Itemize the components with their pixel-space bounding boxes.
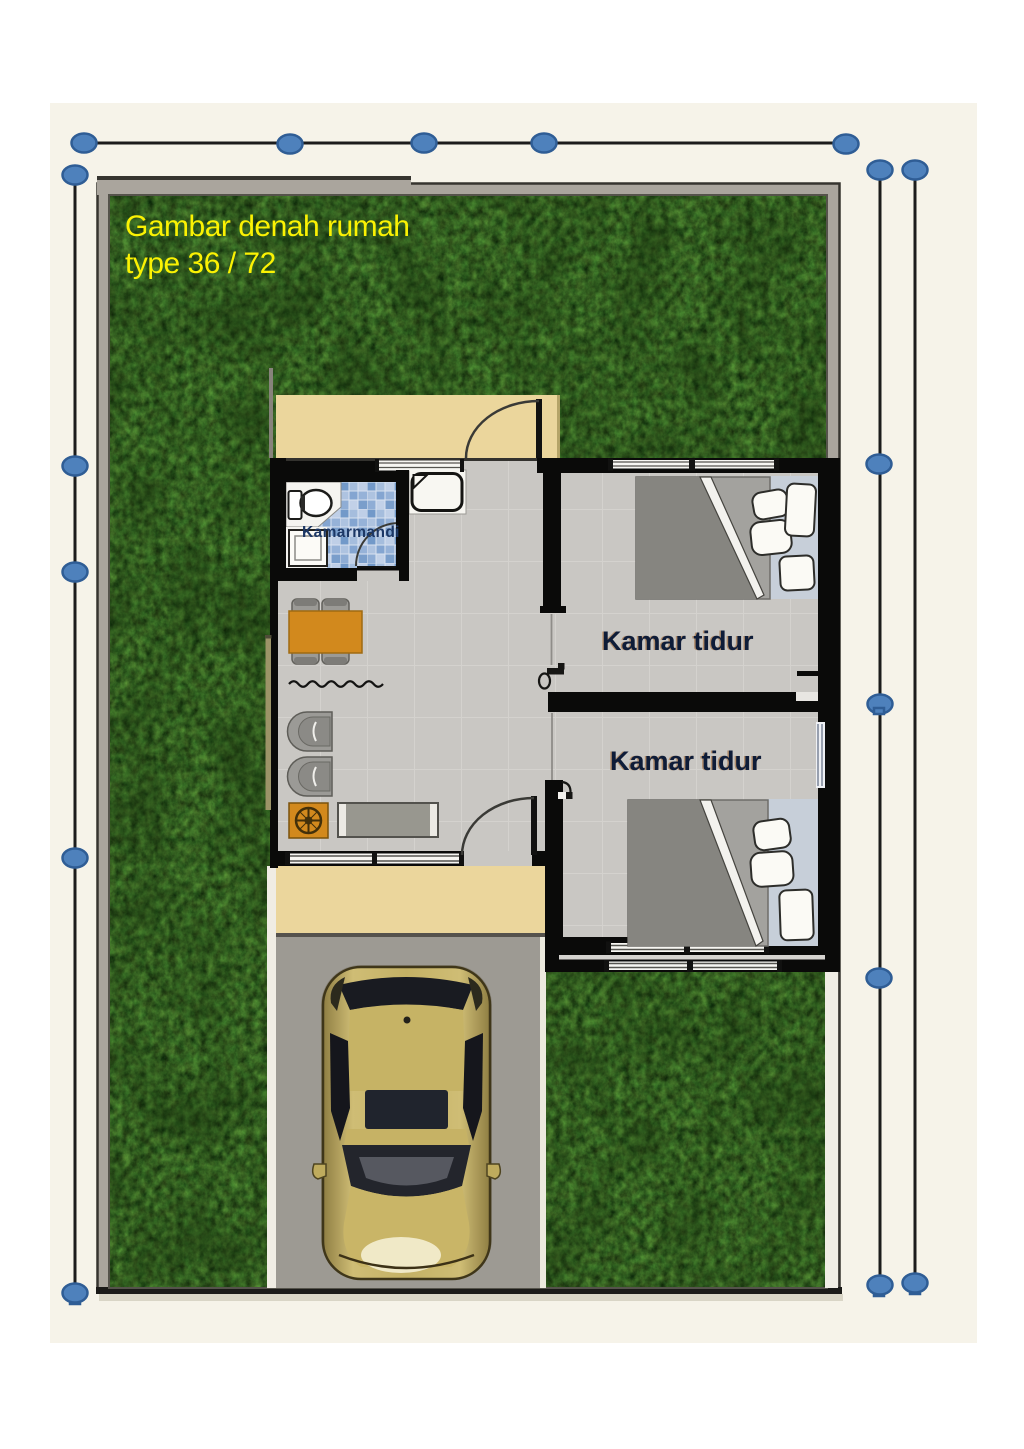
svg-text:type 36 / 72: type 36 / 72 [125,247,276,280]
svg-text:Kamar tidur: Kamar tidur [602,626,754,656]
svg-text:Gambar denah rumah: Gambar denah rumah [125,210,410,243]
svg-text:Kamar tidur: Kamar tidur [610,746,762,776]
svg-text:Kamarmandi: Kamarmandi [302,524,400,541]
